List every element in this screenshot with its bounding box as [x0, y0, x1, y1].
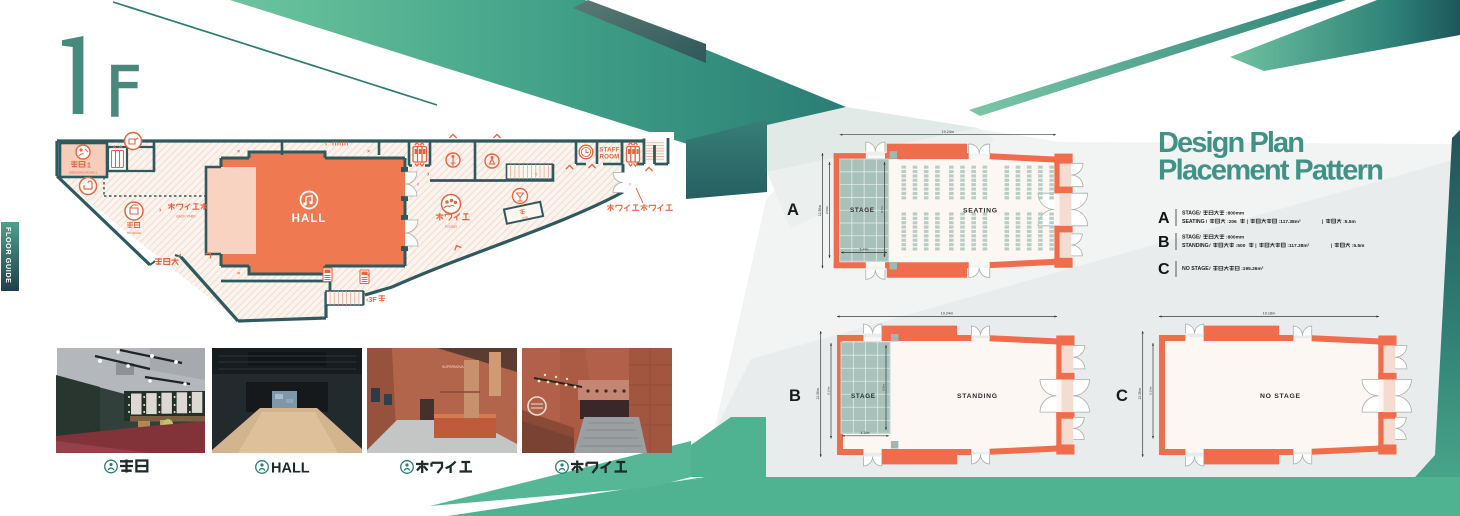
svg-text:HALL: HALL	[292, 213, 327, 225]
svg-text:×: ×	[367, 149, 370, 155]
svg-text:C: C	[1158, 261, 1170, 278]
svg-text:12.36m: 12.36m	[818, 205, 822, 216]
svg-text:HALL: HALL	[271, 461, 310, 477]
svg-text:ROOM: ROOM	[599, 154, 619, 161]
svg-text::800mm: :800mm	[1226, 211, 1244, 217]
svg-text::500: :500	[1236, 243, 1246, 249]
svg-text:FOYER: FOYER	[445, 225, 457, 229]
svg-text:STORAGE: STORAGE	[127, 231, 142, 235]
svg-text:8.7m: 8.7m	[880, 206, 884, 213]
svg-text:1: 1	[87, 163, 91, 170]
svg-text:B: B	[789, 387, 801, 405]
svg-text:|: |	[1331, 243, 1332, 248]
svg-text:|: |	[1255, 243, 1256, 248]
svg-text:NO STAGE: NO STAGE	[1182, 266, 1209, 272]
svg-text::5.5m: :5.5m	[1343, 219, 1356, 225]
svg-text:SEATING: SEATING	[1182, 219, 1205, 225]
svg-text:STAGE: STAGE	[1182, 235, 1200, 241]
svg-text:Placement Pattern: Placement Pattern	[1158, 155, 1384, 187]
svg-text:19.24m: 19.24m	[941, 312, 954, 316]
svg-text:‹: ‹	[535, 171, 537, 178]
svg-text:C: C	[1116, 387, 1128, 405]
svg-text:STAFF: STAFF	[599, 147, 619, 154]
svg-text::117.38m²: :117.38m²	[1287, 243, 1309, 249]
svg-text:NO STAGE: NO STAGE	[1260, 393, 1300, 400]
svg-text:STAGE: STAGE	[851, 393, 875, 400]
svg-text:BACK YARD: BACK YARD	[176, 215, 196, 219]
svg-text:A: A	[1158, 210, 1170, 227]
svg-text:DRESSING ROOM 1: DRESSING ROOM 1	[69, 171, 98, 175]
svg-text:STAGE: STAGE	[1182, 211, 1200, 217]
svg-text:×: ×	[367, 273, 370, 279]
svg-text:9.58m: 9.58m	[825, 205, 829, 214]
svg-text:9.16m: 9.16m	[1149, 386, 1153, 395]
svg-text::206: :206	[1227, 219, 1237, 225]
svg-text:B: B	[1158, 234, 1170, 251]
svg-text::195.26m²: :195.26m²	[1241, 266, 1264, 272]
svg-text:‹: ‹	[629, 182, 631, 188]
svg-text:STAGE: STAGE	[850, 207, 874, 214]
svg-text:STANDING: STANDING	[957, 393, 997, 400]
svg-text:‹3F: ‹3F	[366, 297, 377, 304]
svg-text:4.16m: 4.16m	[861, 431, 870, 435]
svg-text:STANDING: STANDING	[1182, 243, 1209, 249]
svg-text:8.5m: 8.5m	[882, 384, 886, 391]
svg-text:SEATING: SEATING	[963, 208, 997, 215]
svg-text:12.36m: 12.36m	[1138, 388, 1142, 399]
svg-text::117.38m²: :117.38m²	[1279, 219, 1301, 225]
svg-text:5.44m: 5.44m	[860, 248, 869, 252]
svg-text:SUPERNOVA: SUPERNOVA	[442, 365, 464, 369]
svg-text::800mm: :800mm	[1226, 235, 1244, 241]
svg-text:×: ×	[237, 271, 240, 277]
svg-text:|: |	[1247, 219, 1248, 224]
svg-text:‹: ‹	[417, 181, 419, 188]
svg-text:19.24m: 19.24m	[942, 130, 955, 134]
svg-text:12.36m: 12.36m	[816, 388, 820, 399]
svg-text::5.5m: :5.5m	[1352, 243, 1365, 249]
svg-text:|: |	[1322, 219, 1323, 224]
svg-text:›: ›	[325, 141, 327, 148]
svg-text:×: ×	[237, 149, 240, 155]
svg-text:9.16m: 9.16m	[827, 386, 831, 395]
svg-text:A: A	[787, 201, 799, 219]
svg-text:19.18m: 19.18m	[1263, 312, 1276, 316]
svg-text:FLOOR GUIDE: FLOOR GUIDE	[4, 227, 13, 284]
